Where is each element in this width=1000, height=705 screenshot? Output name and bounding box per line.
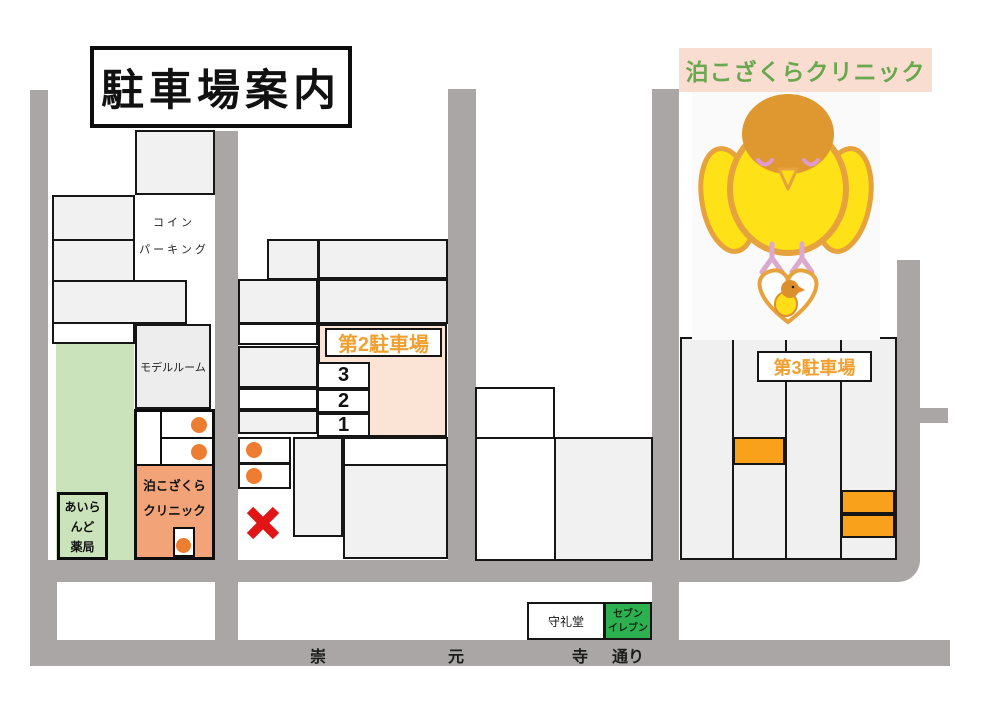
- building-cell: [238, 346, 318, 388]
- building-row-4: [52, 322, 135, 344]
- building-row-2: [52, 239, 135, 282]
- clinic-cell-right-2: [162, 439, 212, 466]
- bird-mascot-icon: [692, 92, 880, 340]
- clinic-banner-text: 泊こざくらクリニック: [686, 53, 926, 87]
- pharmacy-line3: 薬局: [60, 537, 105, 557]
- parking3-reserved-spot: [733, 437, 785, 465]
- clinic-name-line1: 泊こざくら: [137, 474, 212, 499]
- bay-1: 1: [317, 413, 370, 437]
- road-vertical-left-patch: [48, 582, 57, 640]
- coin-parking-label: コイン パーキング: [130, 214, 218, 257]
- bay-3: 3: [317, 362, 370, 389]
- clinic-building: 泊こざくら クリニック: [134, 409, 215, 560]
- entrance-marker-icon: [246, 442, 262, 458]
- building-cell: [318, 279, 448, 324]
- pharmacy-line1: あいら: [60, 497, 105, 517]
- seven-eleven-line2: イレブン: [606, 622, 650, 636]
- entrance-marker-icon: [191, 444, 207, 460]
- bay-2-number: 2: [338, 390, 349, 413]
- clinic-mascot-logo: [692, 92, 880, 340]
- building-cell: [238, 410, 318, 434]
- building-big-3-right: [554, 439, 651, 559]
- no-entry-x-icon: [245, 505, 281, 541]
- parking2-label-text: 第2駐車場: [338, 328, 429, 357]
- street-name-char-4: 通り: [612, 643, 644, 667]
- clinic-cell-right-1: [162, 412, 212, 439]
- road-vertical-3: [448, 89, 476, 581]
- building-cell: [238, 323, 318, 345]
- building-cell: [318, 239, 448, 279]
- model-room-label: モデルルーム: [140, 359, 206, 375]
- bay-2: 2: [317, 389, 370, 413]
- street-name-char-3: 寺: [572, 643, 588, 667]
- road-vertical-right: [897, 260, 920, 562]
- road-vertical-2: [215, 131, 238, 666]
- entrance-marker-icon: [176, 538, 191, 553]
- road-horizontal-upper: [30, 560, 920, 582]
- entrance-cell-2: [238, 463, 291, 489]
- clinic-door: [173, 527, 195, 557]
- building-row-3: [52, 280, 187, 324]
- entrance-marker-icon: [191, 417, 207, 433]
- parking3-label: 第3駐車場: [757, 351, 872, 382]
- parking-guide-map: 崇 元 寺 通り 駐車場案内 コイン パーキング モデルルーム 泊こざくら クリ…: [0, 0, 1000, 705]
- road-horizontal-sogenji: [30, 640, 950, 666]
- coin-parking-line1: コイン: [130, 214, 218, 230]
- parking2-label: 第2駐車場: [325, 328, 442, 357]
- road-stub-right: [920, 408, 948, 423]
- coin-parking-line2: パーキング: [130, 241, 218, 257]
- seven-eleven-building: セブン イレブン: [604, 602, 652, 640]
- building-big-2: [343, 464, 448, 559]
- building-cell: [238, 388, 318, 410]
- street-name-char-2: 元: [448, 643, 464, 667]
- page-title: 駐車場案内: [90, 46, 352, 128]
- building-mid-column: [293, 437, 343, 537]
- clinic-banner: 泊こざくらクリニック: [679, 48, 932, 92]
- building-big-3: [475, 437, 653, 561]
- street-name-char-1: 崇: [310, 643, 326, 667]
- building-under-title: [135, 130, 215, 195]
- bay-3-number: 3: [338, 364, 349, 387]
- building-cell: [267, 239, 319, 280]
- shureido-building: 守礼堂: [527, 602, 605, 640]
- bay-1-number: 1: [338, 414, 349, 437]
- parking3-reserved-spot: [841, 490, 895, 514]
- model-room-building: モデルルーム: [135, 324, 211, 409]
- building-row-1: [52, 195, 135, 241]
- clinic-cell-left: [137, 412, 162, 466]
- entrance-marker-icon: [246, 468, 262, 484]
- pharmacy-building: あいら んど 薬局: [57, 492, 108, 560]
- parking3-label-text: 第3駐車場: [773, 354, 855, 380]
- building-top-3: [475, 387, 555, 439]
- parking3-reserved-spot: [841, 514, 895, 538]
- pharmacy-line2: んど: [60, 517, 105, 537]
- building-cell: [238, 279, 318, 324]
- entrance-cell-1: [238, 437, 291, 464]
- page-title-text: 駐車場案内: [101, 56, 341, 118]
- clinic-name-line2: クリニック: [137, 499, 212, 524]
- clinic-name: 泊こざくら クリニック: [137, 474, 212, 524]
- building-strip: [343, 437, 448, 466]
- seven-eleven-line1: セブン: [606, 608, 650, 622]
- shureido-label: 守礼堂: [548, 613, 584, 630]
